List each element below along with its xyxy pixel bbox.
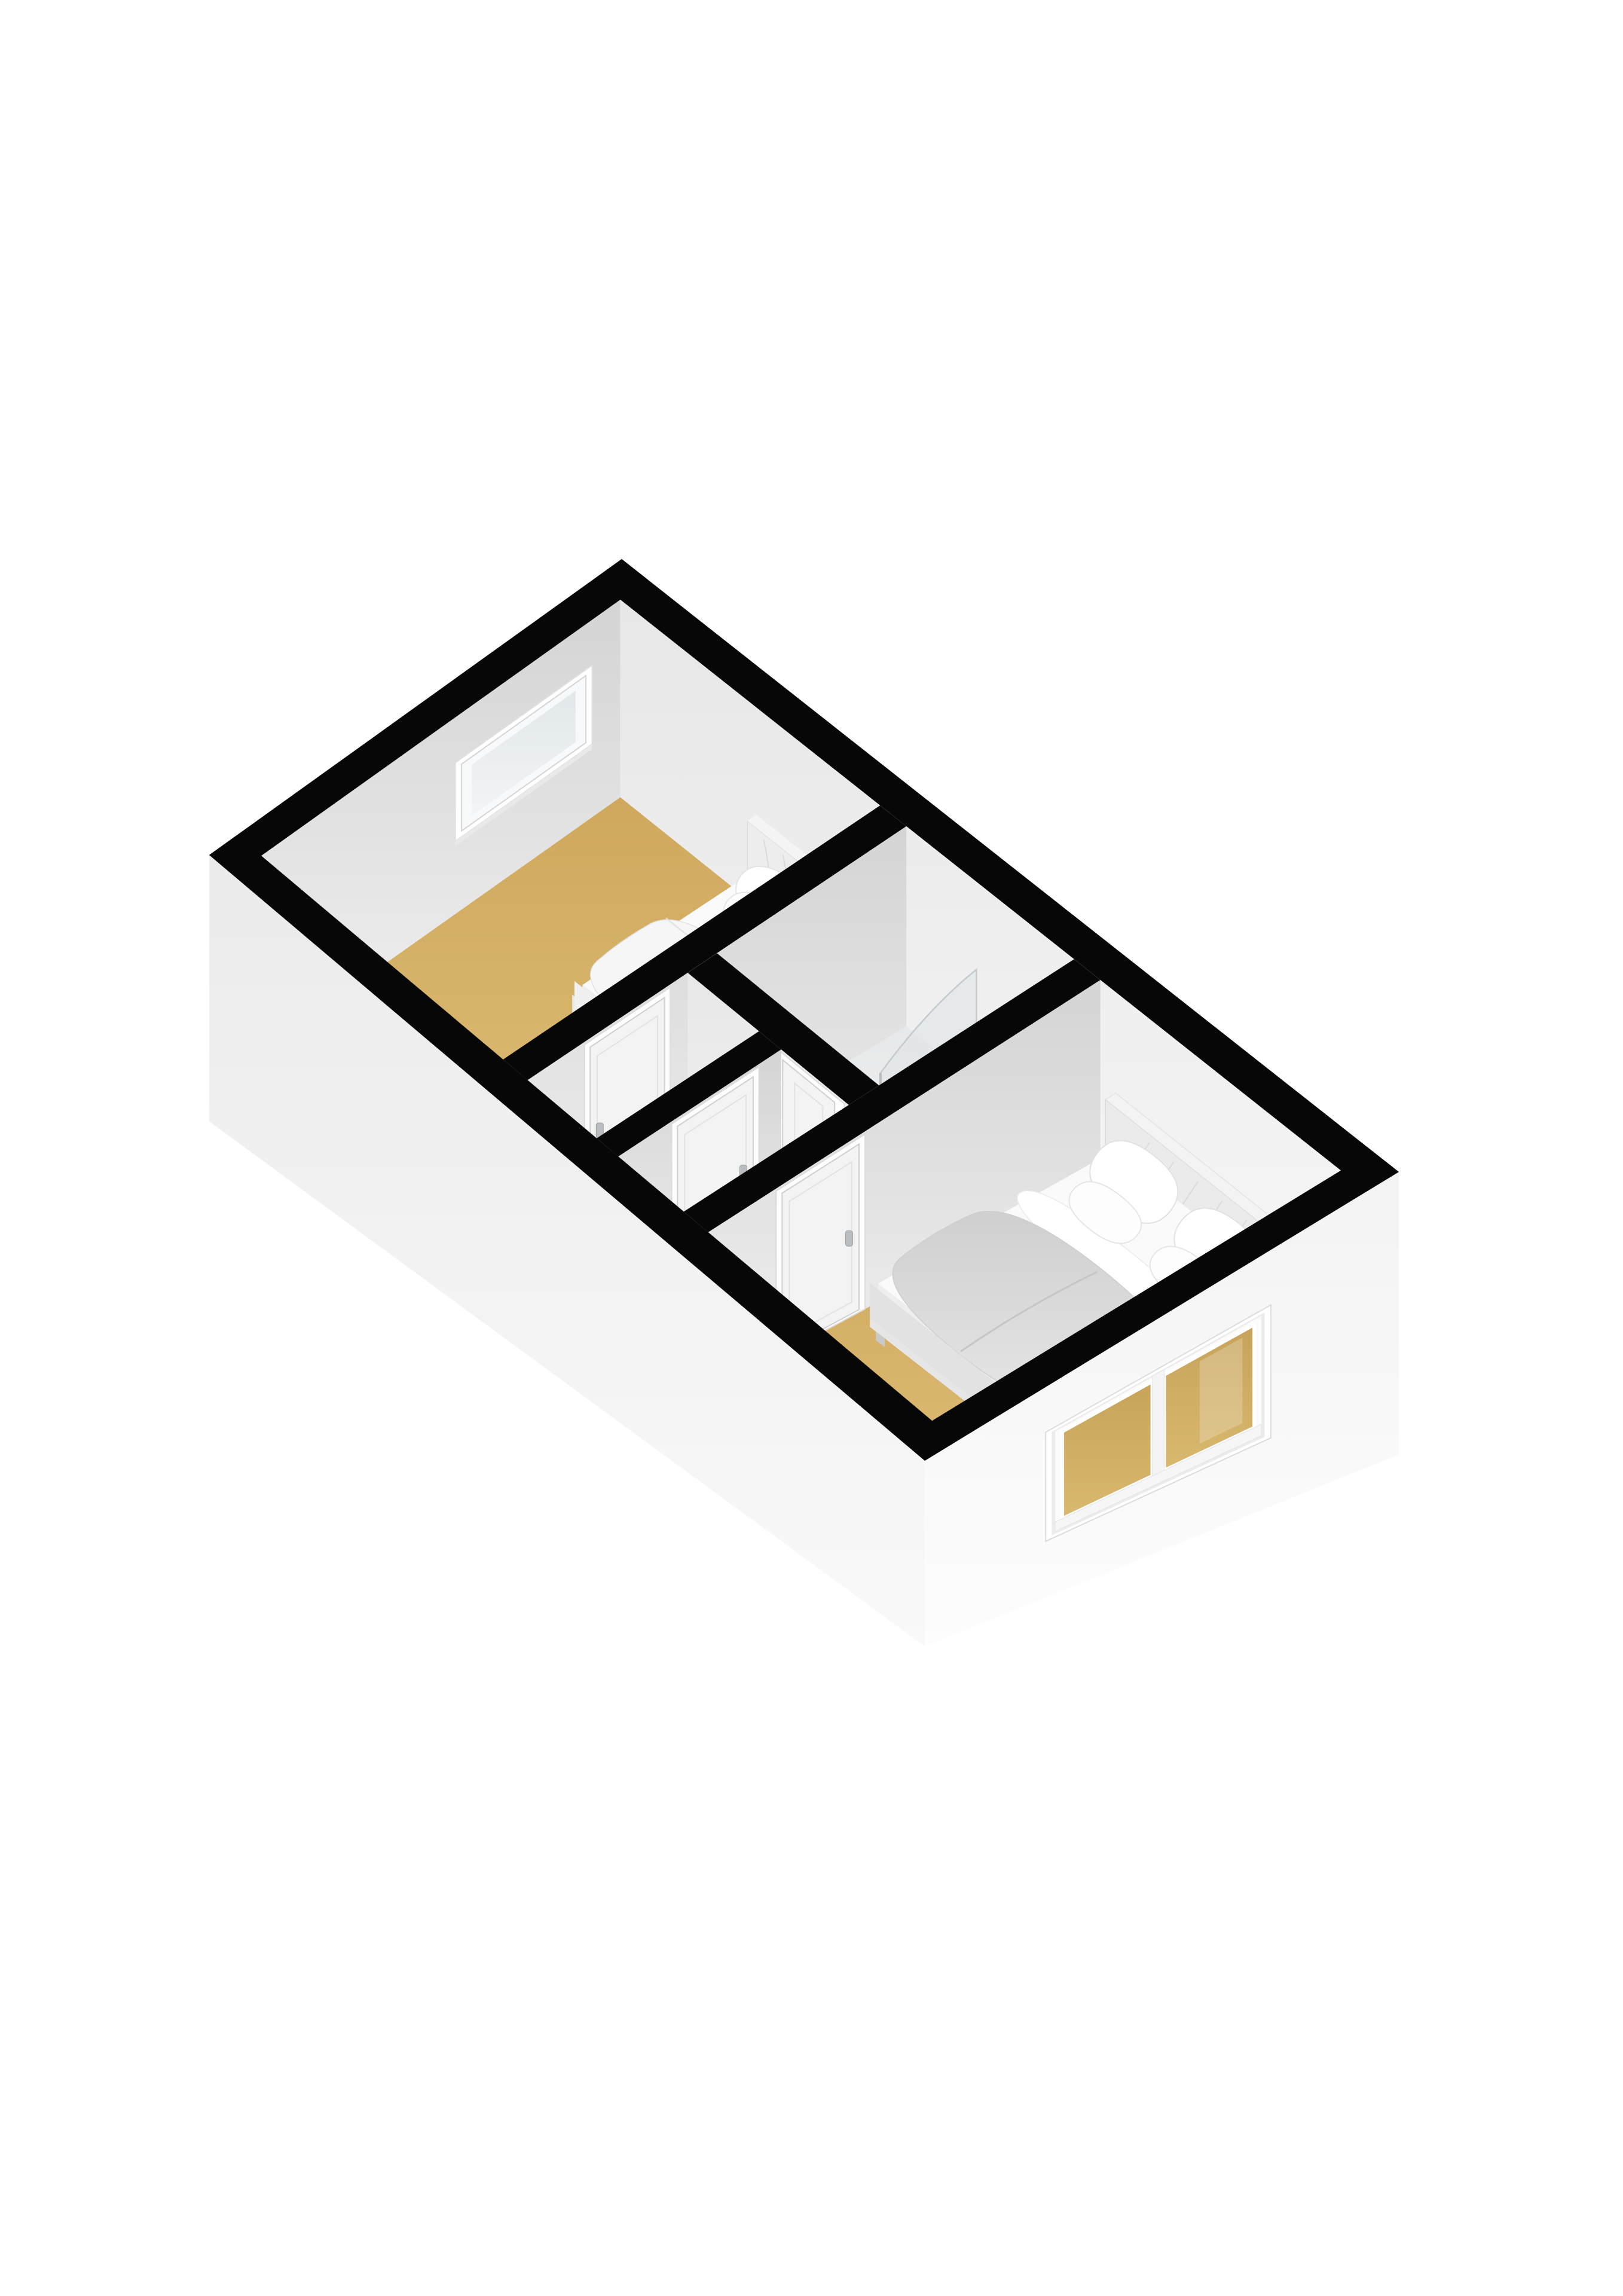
floorplan-3d-svg — [0, 0, 1623, 2296]
floorplan-3d-view — [0, 0, 1623, 2296]
